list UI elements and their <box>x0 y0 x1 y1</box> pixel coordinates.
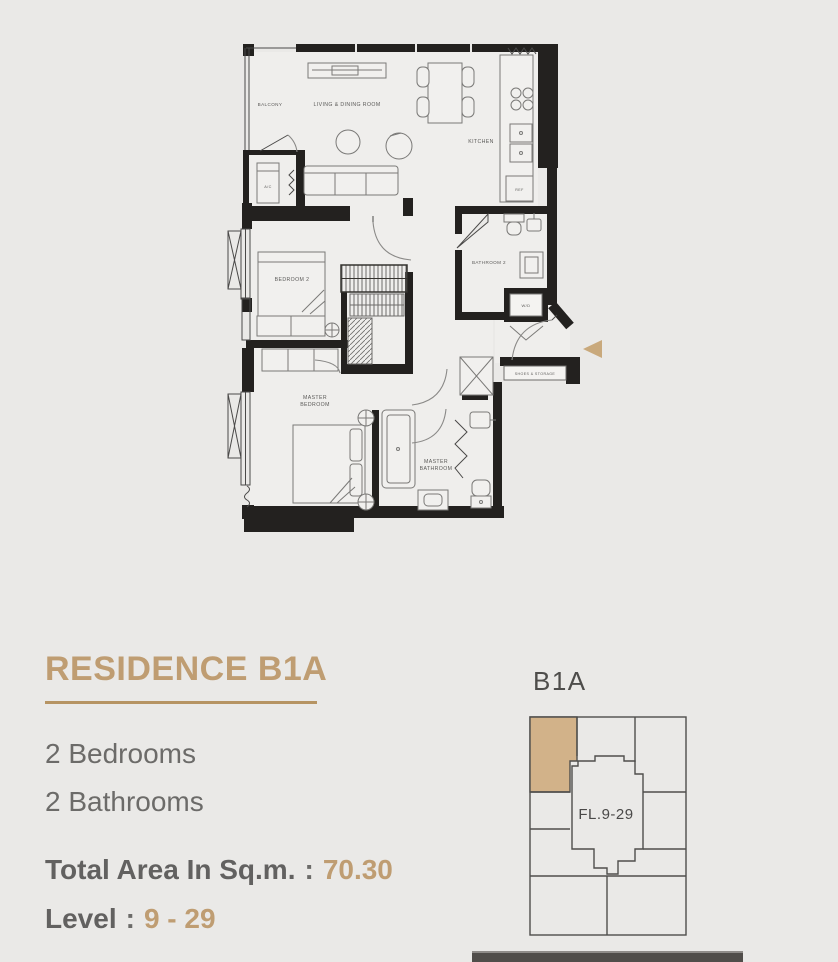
residence-info: RESIDENCE B1A 2 Bedrooms 2 Bathrooms Tot… <box>45 650 465 934</box>
room-label-bathroom2: BATHROOM 2 <box>472 260 506 265</box>
kitchen-fixtures <box>500 55 533 202</box>
master-bedroom-furniture <box>293 410 374 510</box>
key-plan-highlighted-unit <box>530 717 577 792</box>
room-label-ref: REF <box>515 188 524 192</box>
level-separator: : <box>126 903 135 934</box>
level-value: 9 - 29 <box>144 903 216 934</box>
room-label-ac: A/C <box>264 185 272 189</box>
room-label-kitchen: KITCHEN <box>468 139 494 145</box>
area-separator: : <box>304 854 313 885</box>
room-label-bedroom2: BEDROOM 2 <box>275 277 310 283</box>
room-label-master-bathroom-2: BATHROOM <box>420 466 453 472</box>
feature-bedrooms: 2 Bedrooms <box>45 739 465 768</box>
room-label-master-bathroom-1: MASTER <box>424 459 448 465</box>
room-label-shoes: SHOES & STORAGE <box>515 372 556 376</box>
level-label: Level <box>45 903 117 934</box>
entry-arrow-icon <box>583 340 602 358</box>
room-label-wd: W/D <box>522 303 531 308</box>
key-plan: FL.9-29 <box>529 716 687 936</box>
total-area-row: Total Area In Sq.m.:70.30 <box>45 855 465 884</box>
title-underline <box>45 701 317 704</box>
key-plan-unit-title: B1A <box>533 666 587 697</box>
bottom-bar <box>472 951 743 962</box>
room-label-master-bedroom-1: MASTER <box>303 395 327 401</box>
residence-title: RESIDENCE B1A <box>45 650 465 689</box>
room-label-living: LIVING & DINING ROOM <box>313 102 380 108</box>
ac-closet <box>257 163 279 203</box>
entry-storage <box>460 357 566 428</box>
key-plan-floor-label: FL.9-29 <box>578 806 633 823</box>
room-label-balcony: BALCONY <box>258 102 283 107</box>
room-label-master-bedroom-2: BEDROOM <box>300 402 330 408</box>
floor-plan: BALCONY LIVING & DINING ROOM KITCHEN A/C… <box>222 38 614 540</box>
total-area-label: Total Area In Sq.m. <box>45 854 295 885</box>
feature-bathrooms: 2 Bathrooms <box>45 787 465 816</box>
level-row: Level:9 - 29 <box>45 904 465 933</box>
total-area-value: 70.30 <box>323 854 393 885</box>
